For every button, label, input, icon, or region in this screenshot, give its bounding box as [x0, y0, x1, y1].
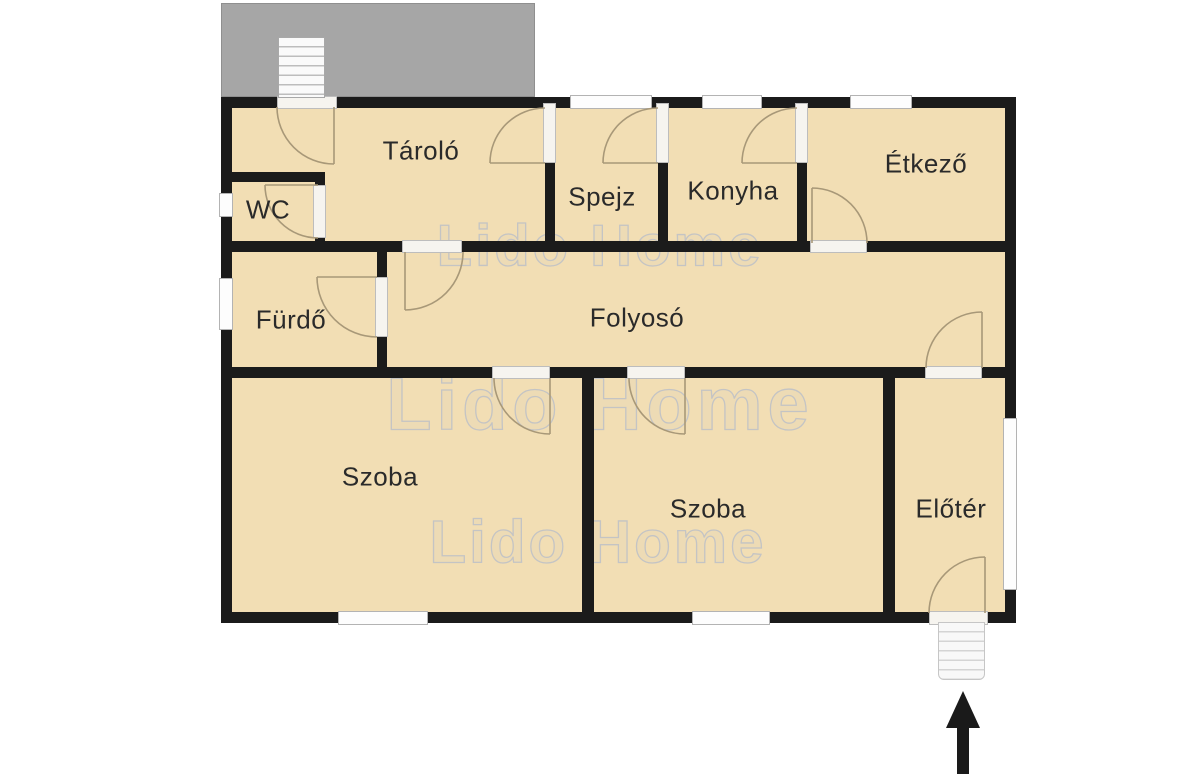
door-swing-szoba2 [629, 378, 685, 434]
room-label-furdo: Fürdő [256, 305, 326, 336]
room-label-spejz: Spejz [568, 182, 636, 213]
room-label-wc: WC [246, 195, 290, 226]
door-swing-konyha-etkezo [742, 108, 797, 163]
floor-plan-canvas: Lido Home Lido Home Lido Home [0, 0, 1200, 783]
room-label-szoba-1: Szoba [342, 462, 418, 493]
door-swing-etkezo-folyoso [812, 188, 867, 243]
room-label-eloter: Előtér [916, 494, 987, 525]
door-swing-tarolo-folyoso [405, 252, 463, 310]
door-swing-entrance [929, 557, 985, 613]
entrance-arrow-icon [946, 691, 980, 774]
room-label-konyha: Konyha [687, 176, 778, 207]
door-swing-terrace-tarolo [277, 107, 334, 164]
door-swing-spejz-konyha [603, 108, 658, 163]
room-label-etkezo: Étkező [885, 149, 968, 180]
door-swing-tarolo-spejz [490, 108, 545, 163]
door-swings-layer [0, 0, 1200, 783]
room-label-folyoso: Folyosó [590, 303, 685, 334]
room-label-tarolo: Tároló [383, 136, 460, 167]
room-label-szoba-2: Szoba [670, 494, 746, 525]
door-swing-szoba1 [494, 378, 550, 434]
door-swing-folyoso-eloter [926, 312, 982, 368]
